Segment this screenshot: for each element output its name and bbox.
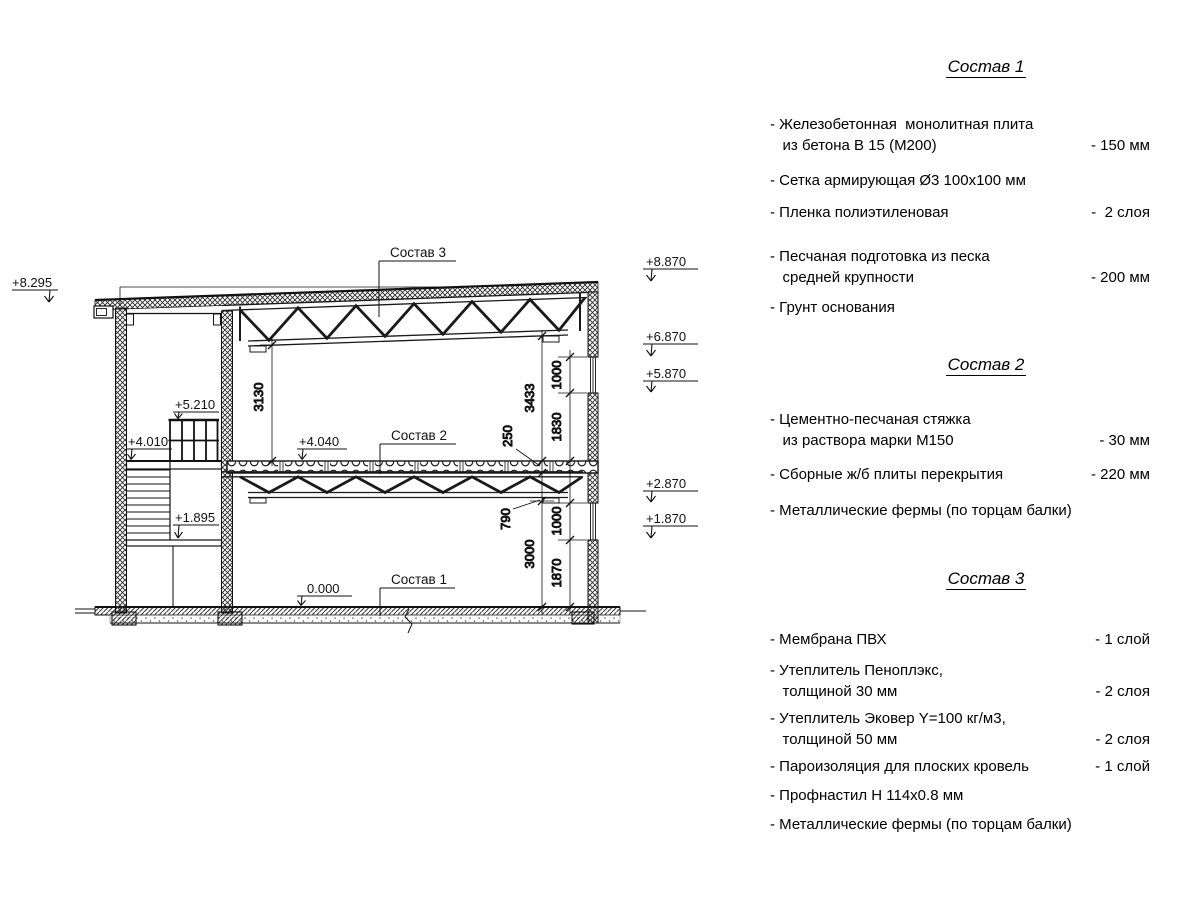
layer-value: - 220 мм [1091,464,1150,485]
layer-name: - Грунт основания [770,297,1150,318]
layer-item: - Пленка полиэтиленовая - 2 слоя [770,202,1150,223]
composition-1-title: Состав 1 [770,56,1200,78]
layer-value: - 2 слоя [1095,729,1150,750]
layer-item: - Металлические фермы (по торцам балки) [770,500,1150,521]
layer-item: - Сетка армирующая Ø3 100х100 мм [770,170,1150,191]
layer-value: - 1 слой [1095,756,1150,777]
layer-item: - Утеплитель Пеноплэкс, толщиной 30 мм -… [770,660,1150,702]
title-text: Состав 2 [946,355,1027,376]
layer-name: - Утеплитель Эковер Y=100 кг/м3, толщино… [770,708,1150,750]
layer-name: - Металлические фермы (по торцам балки) [770,814,1150,835]
layer-name: - Мембрана ПВХ [770,629,1150,650]
layer-value: - 1 слой [1095,629,1150,650]
layer-item: - Утеплитель Эковер Y=100 кг/м3, толщино… [770,708,1150,750]
layer-name: - Цементно-песчаная стяжка из раствора м… [770,409,1150,451]
layer-name: - Пароизоляция для плоских кровель [770,756,1150,777]
title-text: Состав 3 [946,569,1027,590]
layer-name: - Утеплитель Пеноплэкс, толщиной 30 мм [770,660,1150,702]
layer-item: - Пароизоляция для плоских кровель - 1 с… [770,756,1150,777]
layer-value: - 200 мм [1091,267,1150,288]
layer-item: - Мембрана ПВХ - 1 слой [770,629,1150,650]
layer-item: - Грунт основания [770,297,1150,318]
layer-item: - Профнастил Н 114х0.8 мм [770,785,1150,806]
layer-value: - 2 слоя [1091,202,1150,223]
layer-item: - Песчаная подготовка из песка средней к… [770,246,1150,288]
layer-value: - 150 мм [1091,135,1150,156]
layer-value: - 2 слоя [1095,681,1150,702]
layer-value: - 30 мм [1099,430,1150,451]
layer-item: - Цементно-песчаная стяжка из раствора м… [770,409,1150,451]
layer-name: - Сетка армирующая Ø3 100х100 мм [770,170,1150,191]
layer-item: - Железобетонная монолитная плита из бет… [770,114,1150,156]
layer-item: - Металлические фермы (по торцам балки) [770,814,1150,835]
composition-2-title: Состав 2 [770,354,1200,376]
composition-panel: Состав 1 - Железобетонная монолитная пли… [0,0,1200,900]
title-text: Состав 1 [946,57,1027,78]
layer-name: - Профнастил Н 114х0.8 мм [770,785,1150,806]
layer-item: - Сборные ж/б плиты перекрытия - 220 мм [770,464,1150,485]
composition-3-title: Состав 3 [770,568,1200,590]
layer-name: - Металлические фермы (по торцам балки) [770,500,1150,521]
drawing-sheet: 3130 3433 250 790 3000 1000 1830 1000 [0,0,1200,900]
